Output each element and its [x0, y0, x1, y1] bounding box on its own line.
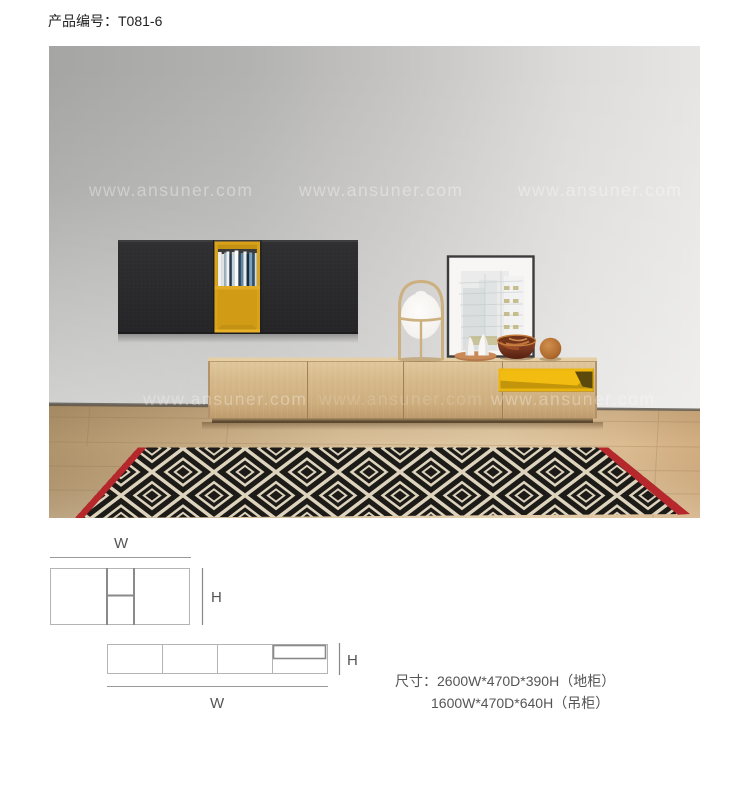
- svg-text:H: H: [347, 652, 358, 669]
- svg-text:H: H: [211, 589, 222, 606]
- svg-text:www.ansuner.com: www.ansuner.com: [142, 389, 308, 409]
- svg-text:W: W: [210, 695, 225, 712]
- svg-text:www.ansuner.com: www.ansuner.com: [88, 180, 254, 200]
- svg-text:www.ansuner.com: www.ansuner.com: [517, 180, 683, 200]
- svg-text:www.ansuner.com: www.ansuner.com: [298, 180, 464, 200]
- svg-text:W: W: [114, 535, 129, 552]
- svg-text:www.ansuner.com: www.ansuner.com: [490, 389, 656, 409]
- svg-text:www.ansuner.com: www.ansuner.com: [318, 389, 484, 409]
